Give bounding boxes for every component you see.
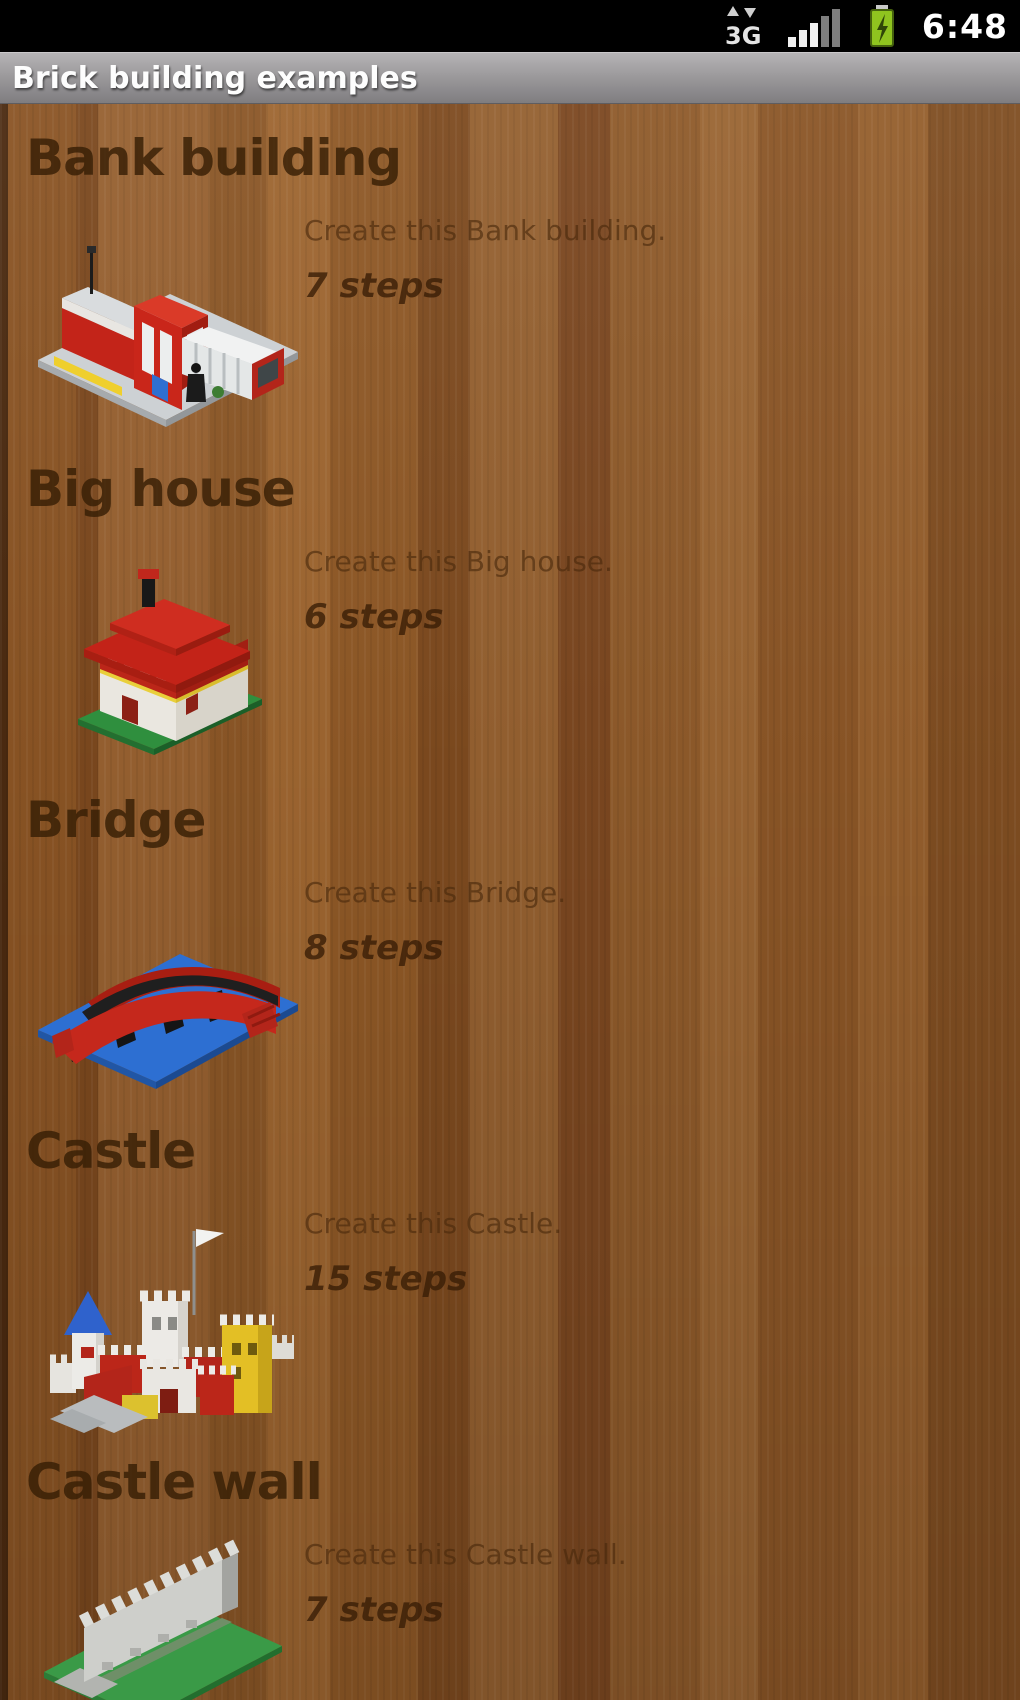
item-steps: 7 steps bbox=[304, 266, 666, 306]
item-title: Bridge bbox=[26, 792, 1020, 848]
castle-wall-model-image bbox=[26, 1526, 304, 1700]
network-type-label: 3G bbox=[725, 22, 761, 48]
castle-model-image bbox=[26, 1195, 304, 1440]
title-bar: Brick building examples bbox=[0, 52, 1020, 104]
screen: 3G 6:48 Brick building examples Bank bui… bbox=[0, 0, 1020, 1700]
item-description: Create this Big house. bbox=[304, 545, 613, 579]
signal-strength-bars-icon bbox=[788, 5, 842, 47]
list-item-bank-building[interactable]: Bank building bbox=[0, 104, 1020, 435]
battery-charging-icon bbox=[868, 4, 896, 48]
3g-data-updown-icon: 3G bbox=[722, 4, 762, 48]
bridge-model-image bbox=[26, 864, 304, 1084]
item-steps: 15 steps bbox=[304, 1259, 562, 1299]
item-description: Create this Bridge. bbox=[304, 876, 566, 910]
item-title: Bank building bbox=[26, 130, 1020, 186]
item-title: Big house bbox=[26, 461, 1020, 517]
status-bar: 3G 6:48 bbox=[0, 0, 1020, 52]
item-description: Create this Bank building. bbox=[304, 214, 666, 248]
bank-building-model-image bbox=[26, 202, 304, 422]
item-steps: 8 steps bbox=[304, 928, 566, 968]
item-title: Castle wall bbox=[26, 1454, 1020, 1510]
list-item-castle[interactable]: Castle bbox=[0, 1097, 1020, 1428]
list-item-big-house[interactable]: Big house bbox=[0, 435, 1020, 766]
item-description: Create this Castle. bbox=[304, 1207, 562, 1241]
building-list: Bank building bbox=[0, 104, 1020, 1700]
item-steps: 6 steps bbox=[304, 597, 613, 637]
list-item-castle-wall[interactable]: Castle wall bbox=[0, 1428, 1020, 1700]
item-title: Castle bbox=[26, 1123, 1020, 1179]
item-steps: 7 steps bbox=[304, 1590, 627, 1630]
page-title: Brick building examples bbox=[12, 61, 418, 96]
list-item-bridge[interactable]: Bridge bbox=[0, 766, 1020, 1097]
item-description: Create this Castle wall. bbox=[304, 1538, 627, 1572]
big-house-model-image bbox=[26, 533, 304, 753]
clock: 6:48 bbox=[922, 7, 1008, 46]
